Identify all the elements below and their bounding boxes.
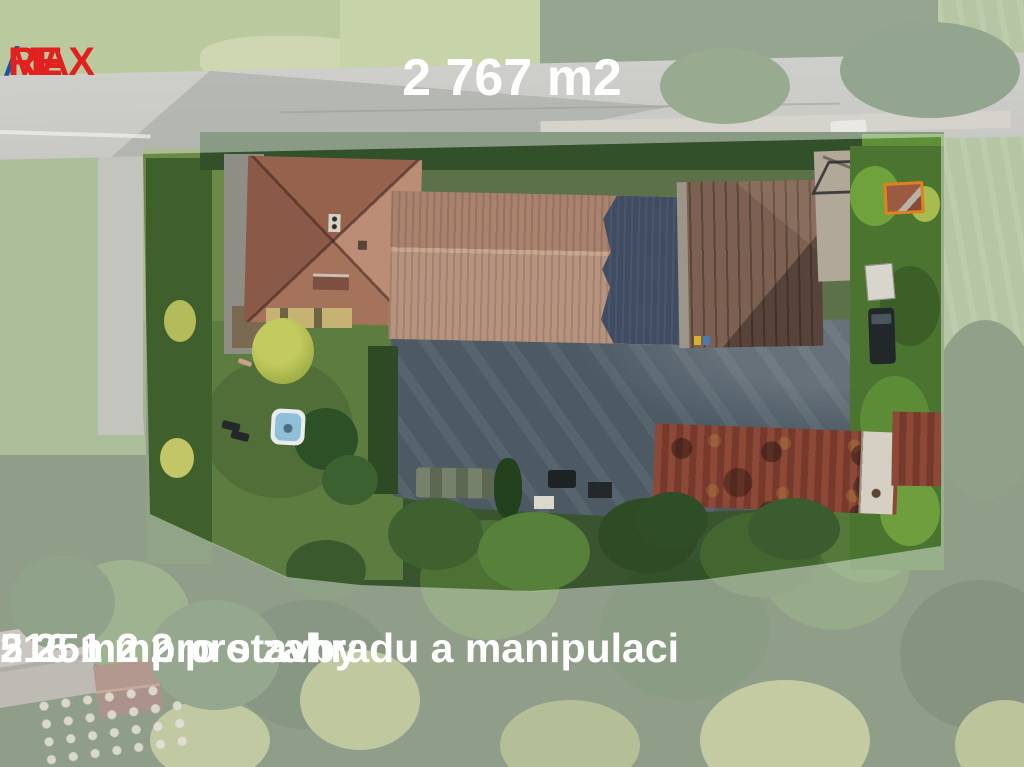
total-area-label: 2 767 m2 — [0, 48, 1024, 108]
garden-area-label: 2 251 m2 pro zahradu a manipulaci — [0, 622, 679, 675]
aerial-property-photo: RE/MAX 2 767 m2 516 m2 pro stavby 2 251 … — [0, 0, 1024, 767]
